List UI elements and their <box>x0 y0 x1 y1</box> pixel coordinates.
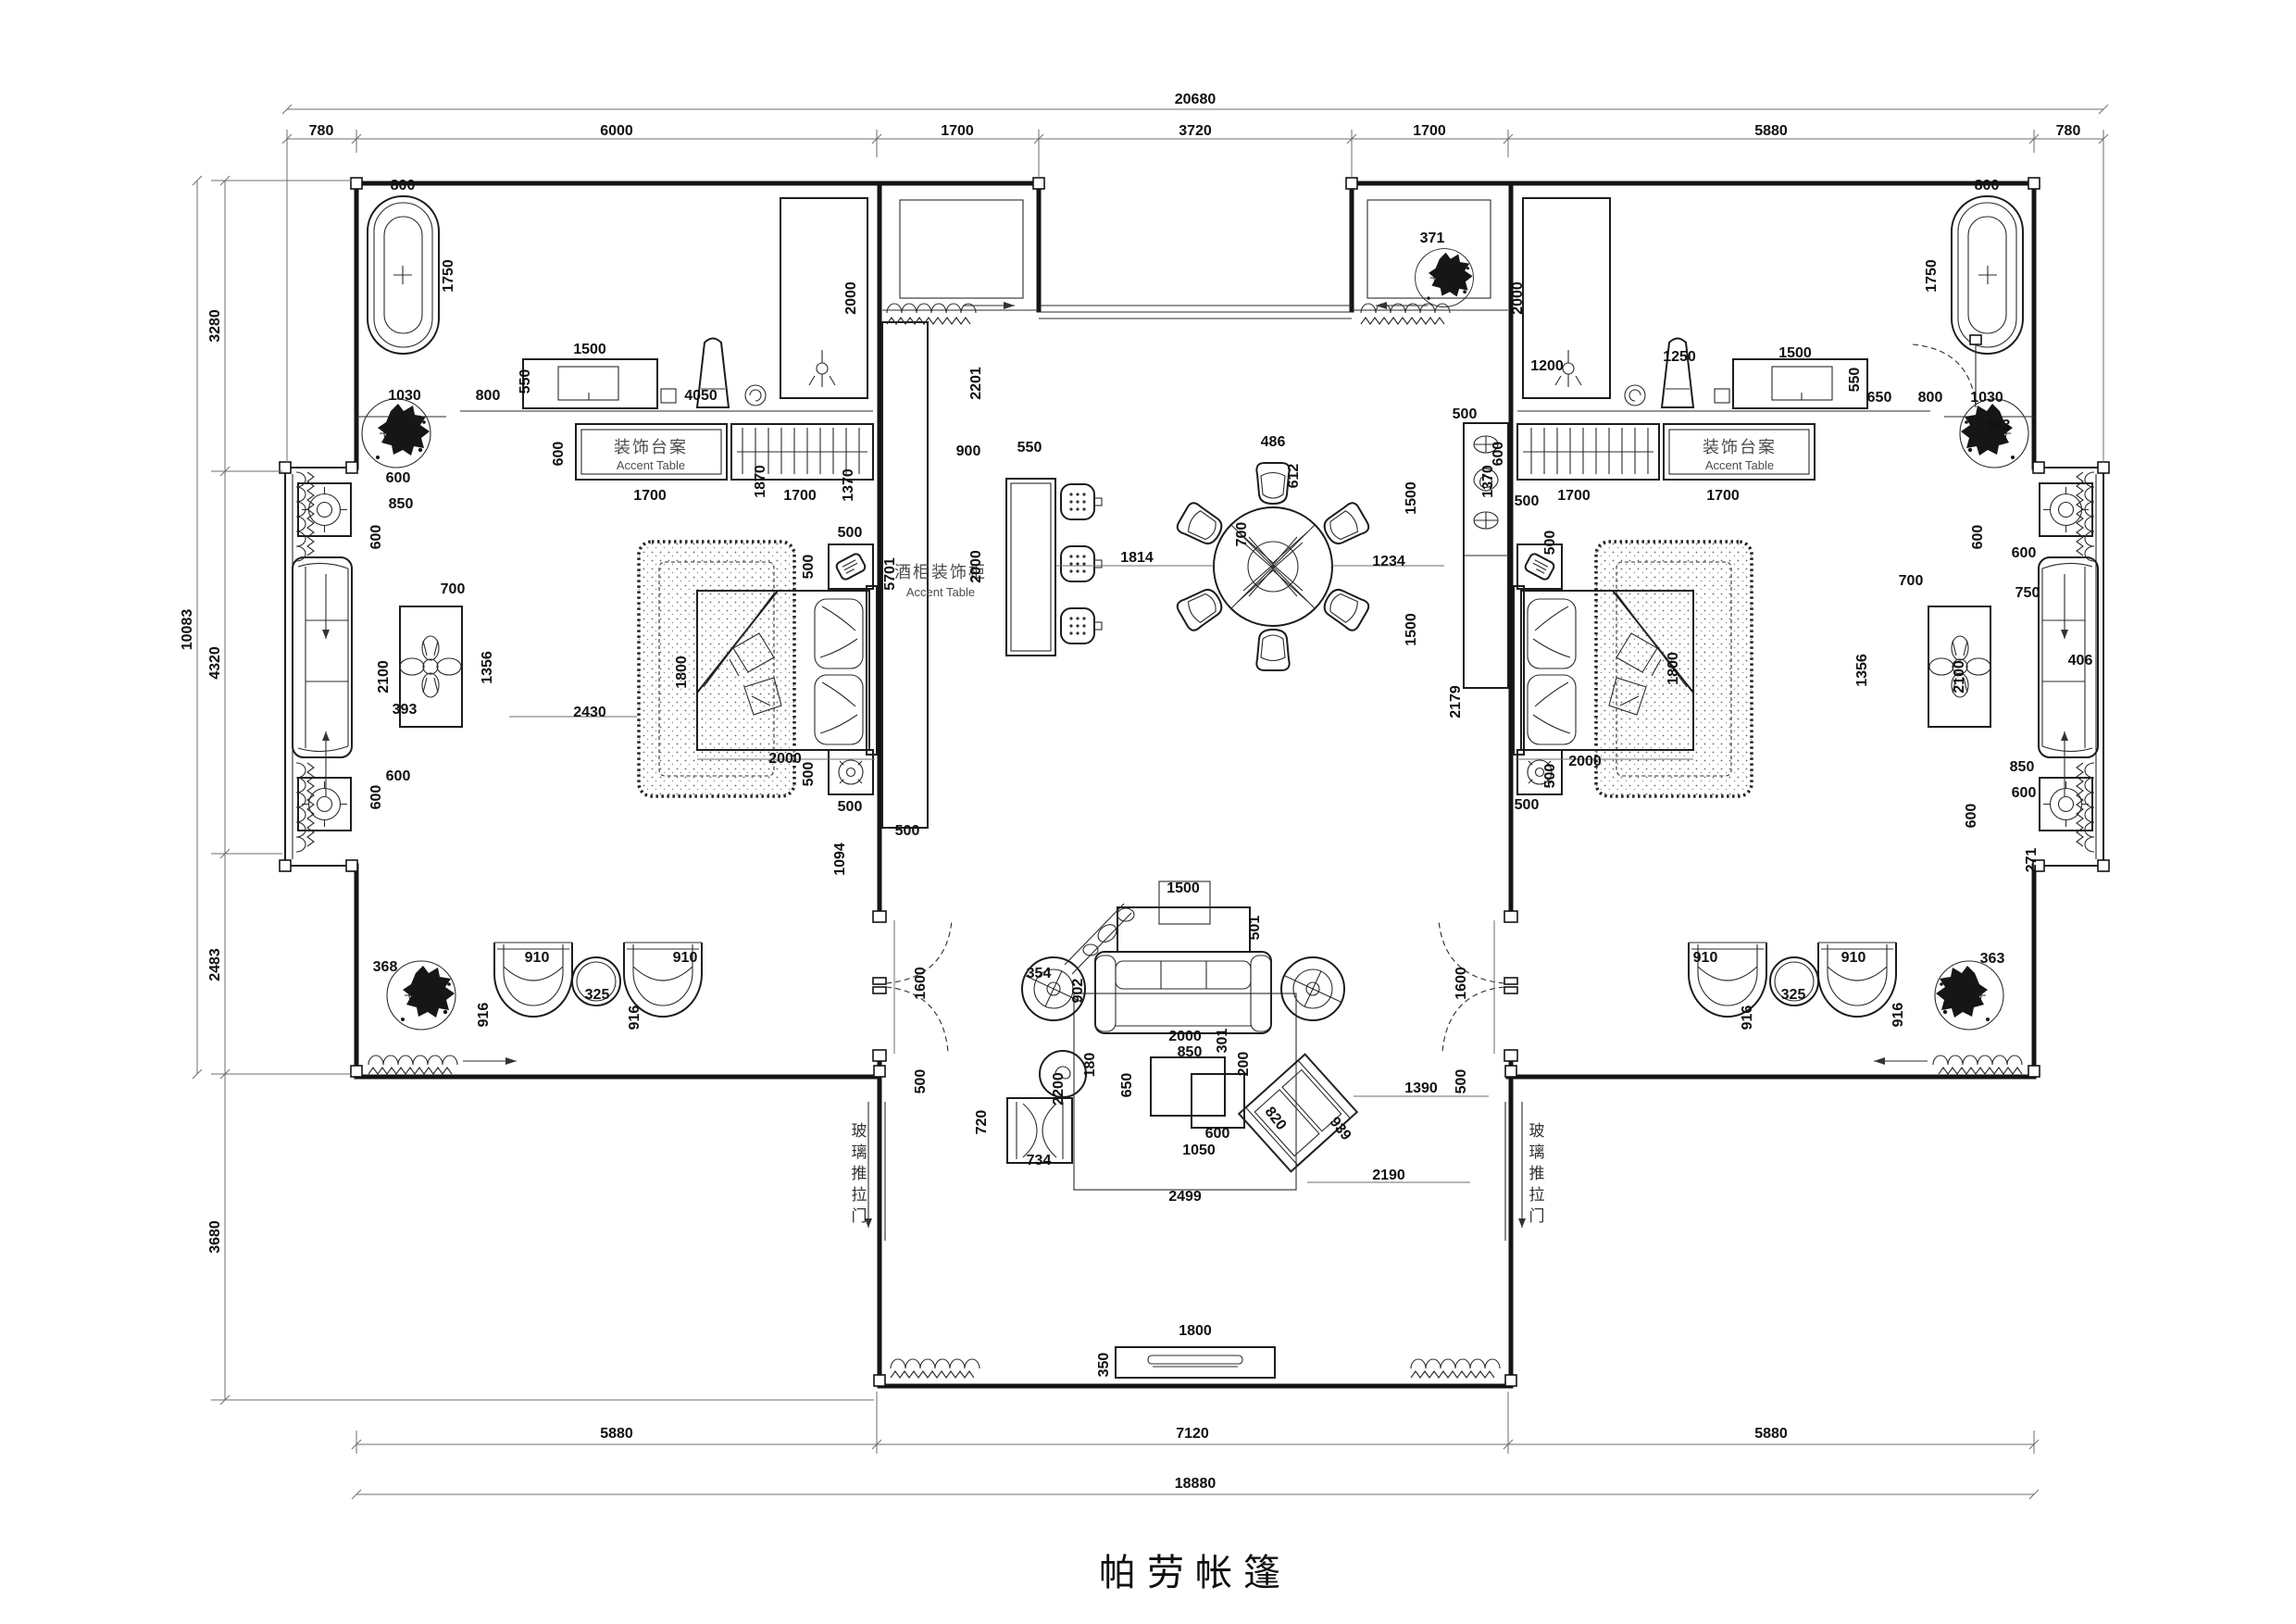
dimension-lines <box>193 105 2108 1499</box>
dimension-label: 916 <box>1740 1006 1755 1031</box>
dimension-label: 700 <box>1234 522 1250 547</box>
dimension-label: 500 <box>1515 797 1540 813</box>
dimension-label: 406 <box>2068 653 2093 668</box>
bay-sofa <box>293 557 352 757</box>
dimension-label: 800 <box>1918 390 1943 406</box>
dimension-label: 600 <box>368 525 384 550</box>
dimension-label: 1700 <box>941 123 974 139</box>
living-console <box>1065 881 1250 974</box>
dimension-label: 1600 <box>1454 967 1469 1000</box>
dimension-label: 2100 <box>376 660 392 693</box>
dimension-label: 5880 <box>1754 1426 1788 1442</box>
center-furniture <box>865 302 1526 1378</box>
dimension-label: 1800 <box>1666 652 1681 685</box>
dimension-label: 734 <box>1027 1153 1052 1168</box>
dimension-label: 916 <box>627 1006 643 1031</box>
dimension-label: 1094 <box>832 843 848 876</box>
dimension-label: 6000 <box>600 123 633 139</box>
dimension-label: 1500 <box>1404 481 1419 515</box>
dimension-label: 800 <box>391 178 416 194</box>
dimension-label: 850 <box>2010 759 2035 775</box>
nightstand-bottom <box>829 750 873 794</box>
dimension-label: 500 <box>1454 1069 1469 1094</box>
dimension-label: 600 <box>2012 785 2037 801</box>
dimension-label: 600 <box>1970 525 1986 550</box>
dimension-label: 1700 <box>783 488 817 504</box>
dimension-label: 600 <box>386 768 411 784</box>
dimension-label: 600 <box>1964 804 1979 829</box>
dimension-label: 850 <box>1178 1044 1203 1060</box>
dimension-label: 910 <box>1693 950 1718 966</box>
dimension-label: 910 <box>673 950 698 966</box>
dimension-label: 10083 <box>180 609 195 651</box>
dimension-label: 1700 <box>633 488 667 504</box>
dimension-label: 910 <box>1841 950 1866 966</box>
dimension-labels: 2068078060001700372017005880780100833280… <box>180 92 2092 1492</box>
dimension-label: 1500 <box>1404 613 1419 646</box>
dimension-label: 368 <box>373 959 398 975</box>
floor-plan-svg: 装饰台案 Accent Table 装饰台案 Accent Table 酒柜装饰… <box>0 0 2296 1624</box>
dimension-label: 18880 <box>1175 1476 1217 1492</box>
dimension-label: 1370 <box>841 468 856 502</box>
top-closet-left <box>900 200 1023 298</box>
dimension-label: 916 <box>476 1003 492 1028</box>
accent-table-label-right-en: Accent Table <box>1705 458 1774 472</box>
dimension-label: 500 <box>913 1069 929 1094</box>
dimension-label: 500 <box>1515 493 1540 509</box>
dimension-label: 700 <box>1899 573 1924 589</box>
dimension-label: 2190 <box>1372 1168 1405 1183</box>
dimension-label: 600 <box>1491 442 1506 467</box>
dimension-label: 500 <box>1542 764 1558 789</box>
dining-table <box>1214 507 1332 626</box>
dimension-label: 1250 <box>1663 349 1696 365</box>
dimension-label: 354 <box>1027 966 1052 981</box>
dimension-label: 1390 <box>1404 1081 1438 1096</box>
brazier <box>1239 1055 1357 1172</box>
dimension-label: 4050 <box>684 388 717 404</box>
dimension-label: 350 <box>1096 1353 1112 1378</box>
dimension-label: 902 <box>1070 979 1086 1004</box>
dimension-label: 180 <box>1082 1053 1098 1078</box>
glass-door-label-left: 玻璃推拉门 <box>849 1122 867 1229</box>
dimension-label: 1356 <box>480 651 495 684</box>
bar-console <box>1006 479 1102 656</box>
dimension-label: 1800 <box>1179 1323 1212 1339</box>
dimension-label: 4320 <box>207 646 223 680</box>
dimension-label: 780 <box>2056 123 2081 139</box>
dimension-label: 2000 <box>843 281 859 315</box>
dimension-label: 2000 <box>1510 281 1526 315</box>
dimension-label: 486 <box>1261 434 1286 450</box>
dimension-label: 1050 <box>1182 1143 1216 1158</box>
dimension-label: 363 <box>1980 951 2005 967</box>
dimension-label: 720 <box>974 1110 990 1135</box>
dimension-label: 501 <box>1247 916 1263 941</box>
dimension-label: 200 <box>1236 1052 1252 1077</box>
dimension-label: 500 <box>801 762 817 787</box>
dimension-label: 2179 <box>1448 685 1464 718</box>
drawing-title: 帕劳帐篷 <box>1099 1552 1291 1593</box>
right-suite-furniture <box>1439 196 2098 1074</box>
dimension-label: 7120 <box>1176 1426 1209 1442</box>
dimension-label: 500 <box>1453 406 1478 422</box>
dimension-label: 2100 <box>1952 660 1967 693</box>
dimension-label: 3720 <box>1179 123 1212 139</box>
dimension-label: 301 <box>1215 1029 1230 1054</box>
dimension-label: 1700 <box>1413 123 1446 139</box>
dimension-label: 3280 <box>207 309 223 343</box>
dimension-label: 750 <box>2015 585 2040 601</box>
dimension-label: 600 <box>551 442 567 467</box>
accent-table-label-right-cn: 装饰台案 <box>1703 438 1777 456</box>
dimension-label: 2000 <box>768 751 802 767</box>
dimension-label: 1500 <box>1167 881 1200 896</box>
dimension-label: 500 <box>895 823 920 839</box>
dimension-label: 550 <box>1847 368 1863 393</box>
dimension-label: 5701 <box>882 557 898 591</box>
dimension-label: 650 <box>1119 1073 1135 1098</box>
bottom-console <box>1116 1347 1275 1378</box>
dimension-label: 1700 <box>1706 488 1740 504</box>
dimension-label: 1600 <box>913 967 929 1000</box>
dimension-label: 2000 <box>1568 754 1602 769</box>
dimension-label: 1814 <box>1120 550 1154 566</box>
dimension-label: 500 <box>838 525 863 541</box>
dimension-label: 1800 <box>674 656 690 689</box>
dimension-label: 900 <box>956 443 981 459</box>
drawing-sheet: 装饰台案 Accent Table 装饰台案 Accent Table 酒柜装饰… <box>0 0 2296 1624</box>
bay-window-wall <box>285 468 2103 866</box>
dimension-label: 2483 <box>207 948 223 981</box>
wine-cabinet-label-en: Accent Table <box>906 585 975 599</box>
dimension-label: 850 <box>389 496 414 512</box>
dimension-label: 780 <box>309 123 334 139</box>
dimension-label: 1030 <box>388 388 421 404</box>
dimension-label: 1356 <box>1854 654 1870 687</box>
dimension-label: 1700 <box>1557 488 1591 504</box>
dimension-label: 1750 <box>1924 259 1940 293</box>
dimension-label: 550 <box>518 369 533 394</box>
dimension-label: 1500 <box>1778 345 1812 361</box>
dimension-label: 910 <box>525 950 550 966</box>
dimension-label: 550 <box>1017 440 1042 456</box>
dimension-label: 1030 <box>1970 390 2003 406</box>
dimension-label: 600 <box>386 470 411 486</box>
coffee-tables <box>1151 1057 1244 1128</box>
dimension-label: 500 <box>801 555 817 580</box>
left-suite-furniture <box>293 196 952 1074</box>
dimension-label: 1234 <box>1372 554 1405 569</box>
bathtub <box>368 196 439 354</box>
dimension-label: 2000 <box>1168 1029 1202 1044</box>
dimension-label: 500 <box>1542 531 1558 556</box>
glass-door-label-right: 玻璃推拉门 <box>1527 1122 1545 1229</box>
dimension-label: 1750 <box>441 259 456 293</box>
dimension-label: 20680 <box>1175 92 1217 107</box>
dimension-label: 1870 <box>753 465 768 498</box>
dimension-label: 800 <box>1975 178 2000 194</box>
dimension-label: 5880 <box>1754 123 1788 139</box>
dimension-label: 1500 <box>573 342 606 357</box>
accent-table-label-left-en: Accent Table <box>617 458 685 472</box>
nightstand-top <box>829 544 873 589</box>
dimension-label: 2499 <box>1168 1189 1202 1205</box>
dimension-label: 700 <box>441 581 466 597</box>
living-sofa <box>1095 952 1271 1033</box>
dimension-label: 5880 <box>600 1426 633 1442</box>
dimension-label: 3680 <box>207 1220 223 1254</box>
dimension-label: 2000 <box>968 550 984 583</box>
dimension-label: 612 <box>1286 464 1302 489</box>
dimension-label: 325 <box>1781 987 1806 1003</box>
top-closet-right <box>1367 200 1491 298</box>
dimension-label: 2200 <box>1051 1072 1067 1106</box>
dimension-label: 600 <box>2012 545 2037 561</box>
dimension-label: 916 <box>1890 1003 1906 1028</box>
dimension-label: 600 <box>1205 1126 1230 1142</box>
right-suite-extras <box>1416 249 1981 407</box>
dimension-label: 393 <box>393 702 418 718</box>
dimension-label: 371 <box>1420 231 1445 246</box>
accent-table-label-left-cn: 装饰台案 <box>614 438 688 456</box>
dimension-label: 271 <box>2024 848 2040 873</box>
dimension-label: 650 <box>1867 390 1892 406</box>
dimension-label: 1370 <box>1480 465 1496 498</box>
dimension-label: 2430 <box>573 705 606 720</box>
dimension-label: 325 <box>585 987 610 1003</box>
dimension-label: 2201 <box>968 367 984 400</box>
dimension-label: 500 <box>838 799 863 815</box>
dimension-label: 600 <box>368 785 384 810</box>
dimension-label: 800 <box>476 388 501 404</box>
dimension-label: 1200 <box>1530 358 1564 374</box>
dimension-label: 363 <box>1986 418 2011 433</box>
vanity <box>523 339 766 409</box>
